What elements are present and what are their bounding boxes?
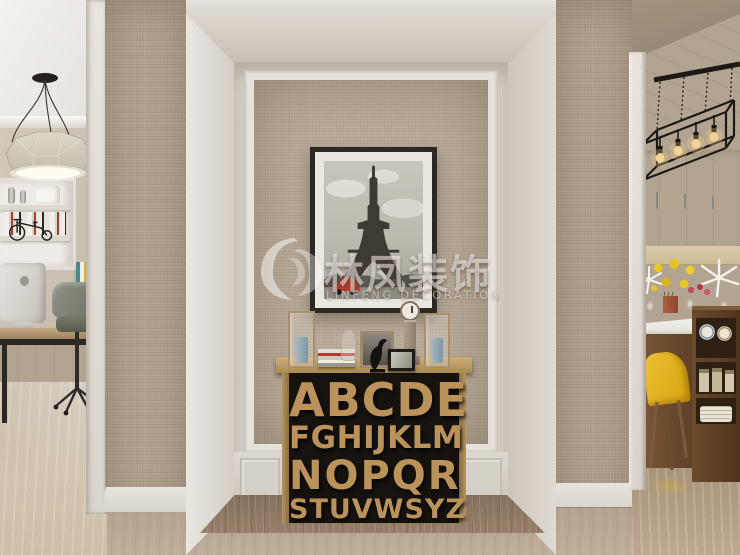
- dining-door-jamb: [629, 52, 646, 490]
- decorative-plate: [699, 324, 715, 340]
- spice-jar: [699, 369, 709, 392]
- decorative-plate: [717, 326, 732, 341]
- plate-stack: [700, 406, 732, 422]
- spice-jar: [725, 370, 734, 392]
- chandelier: [630, 58, 740, 208]
- dining-room: [0, 0, 740, 555]
- sideboard: [692, 306, 740, 482]
- sideboard-shelf-jars: [696, 362, 736, 394]
- pink-flowers: [685, 282, 711, 298]
- spice-jar: [712, 368, 722, 392]
- sideboard-shelf-stack: [696, 398, 736, 424]
- interior-photo: ABCDE FGHIJKLM NOPQR STUVWSYZ: [0, 0, 740, 555]
- sideboard-shelf-plates: [696, 318, 736, 358]
